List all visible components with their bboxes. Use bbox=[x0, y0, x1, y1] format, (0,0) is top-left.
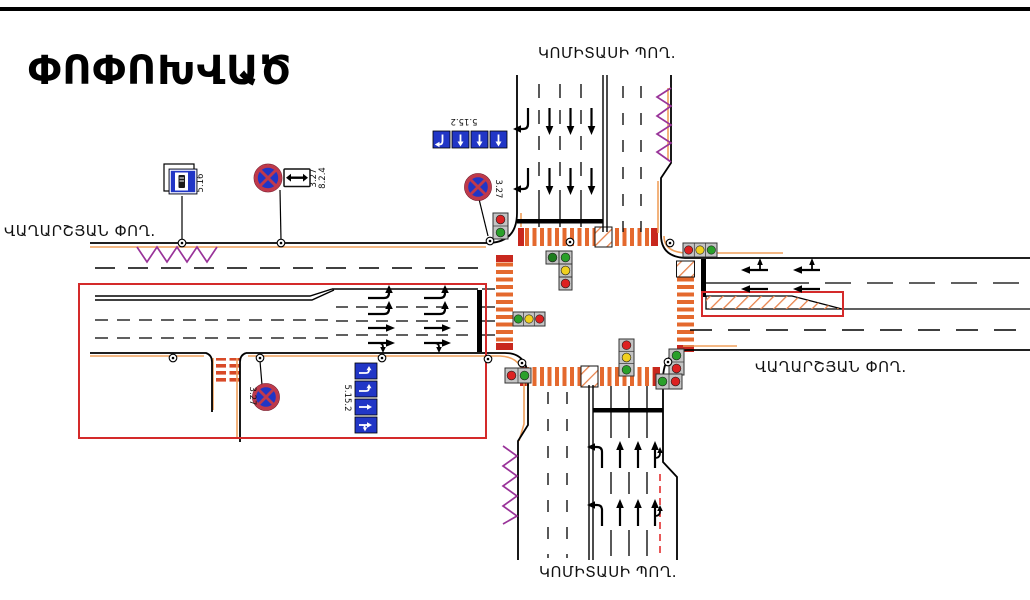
arrows-northbound bbox=[587, 441, 663, 526]
zigzag-south bbox=[503, 446, 517, 524]
sign-lane-directions-north: 5.15.2 bbox=[433, 116, 507, 148]
street-label-north: ԿՈՄԻՏԱՍԻ ՊՈՂ. bbox=[538, 44, 676, 62]
lane-markings bbox=[95, 75, 1030, 560]
traffic-island bbox=[706, 296, 842, 309]
crosswalk-hatch-box bbox=[677, 261, 695, 277]
top-rule bbox=[0, 7, 1030, 11]
crosswalk-south bbox=[520, 366, 660, 387]
sign-code-label: 5.15.2 bbox=[342, 384, 352, 411]
sign-code-label: 3.27 bbox=[247, 387, 257, 406]
sign-code-label: 5.16 bbox=[196, 174, 206, 193]
plate-code-label: 8.2.4 bbox=[318, 167, 328, 189]
pole-marker bbox=[666, 239, 674, 247]
sign-code-label: 3.27 bbox=[493, 180, 503, 199]
pole-marker bbox=[256, 354, 264, 362]
signal-pedestrian-southeast-horizontal bbox=[656, 374, 682, 389]
page-title: ՓՈՓՈԽՎԱԾ bbox=[28, 48, 292, 94]
signal-northeast-horizontal bbox=[683, 243, 717, 257]
street-label-south: ԿՈՄԻՏԱՍԻ ՊՈՂ. bbox=[539, 563, 677, 581]
pole-marker bbox=[518, 359, 526, 367]
arrows-southbound bbox=[513, 108, 595, 195]
zigzag-west bbox=[137, 247, 217, 262]
zigzag-north bbox=[657, 88, 671, 162]
pole-marker bbox=[277, 239, 285, 247]
sign-code-label: 5.15.2 bbox=[450, 116, 477, 126]
pole-marker bbox=[484, 355, 492, 363]
pole-marker bbox=[178, 239, 186, 247]
signal-pedestrian-southwest bbox=[505, 368, 531, 383]
arrows-westbound bbox=[741, 258, 820, 293]
arrows-eastbound bbox=[368, 285, 451, 353]
signal-west-horizontal bbox=[513, 312, 545, 326]
pole-marker bbox=[169, 354, 177, 362]
sign-no-stopping-west: 3.27 8.2.4 bbox=[254, 164, 328, 240]
signal-pedestrian-northwest bbox=[493, 213, 508, 239]
pole-symbols bbox=[169, 237, 674, 367]
street-label-east: ՎԱՂԱՐՇՅԱՆ ՓՈՂ. bbox=[755, 358, 907, 376]
crosswalk-west bbox=[496, 255, 513, 350]
street-label-west: ՎԱՂԱՐՇՅԱՆ ՓՈՂ. bbox=[4, 222, 156, 240]
sign-no-stopping-side: 3.27 bbox=[247, 361, 280, 411]
traffic-scheme-page: 5.16 3.27 8.2.4 3.27 bbox=[0, 0, 1030, 600]
intersection-diagram: 5.16 3.27 8.2.4 3.27 bbox=[0, 0, 1030, 600]
pole-marker bbox=[664, 358, 672, 366]
signal-south-vertical bbox=[619, 339, 634, 376]
pole-marker bbox=[566, 238, 574, 246]
pole-marker bbox=[378, 354, 386, 362]
sign-lane-directions-west: 5.15.2 bbox=[342, 363, 377, 433]
sign-bus-stop: 5.16 bbox=[164, 164, 206, 240]
crosswalk-hatch-box bbox=[581, 366, 598, 387]
signal-north-cluster bbox=[546, 251, 572, 290]
crosswalk-east bbox=[677, 261, 695, 352]
pole-marker bbox=[486, 237, 494, 245]
bus-zone-zigzags bbox=[137, 88, 671, 524]
crosswalk-north bbox=[518, 227, 658, 247]
